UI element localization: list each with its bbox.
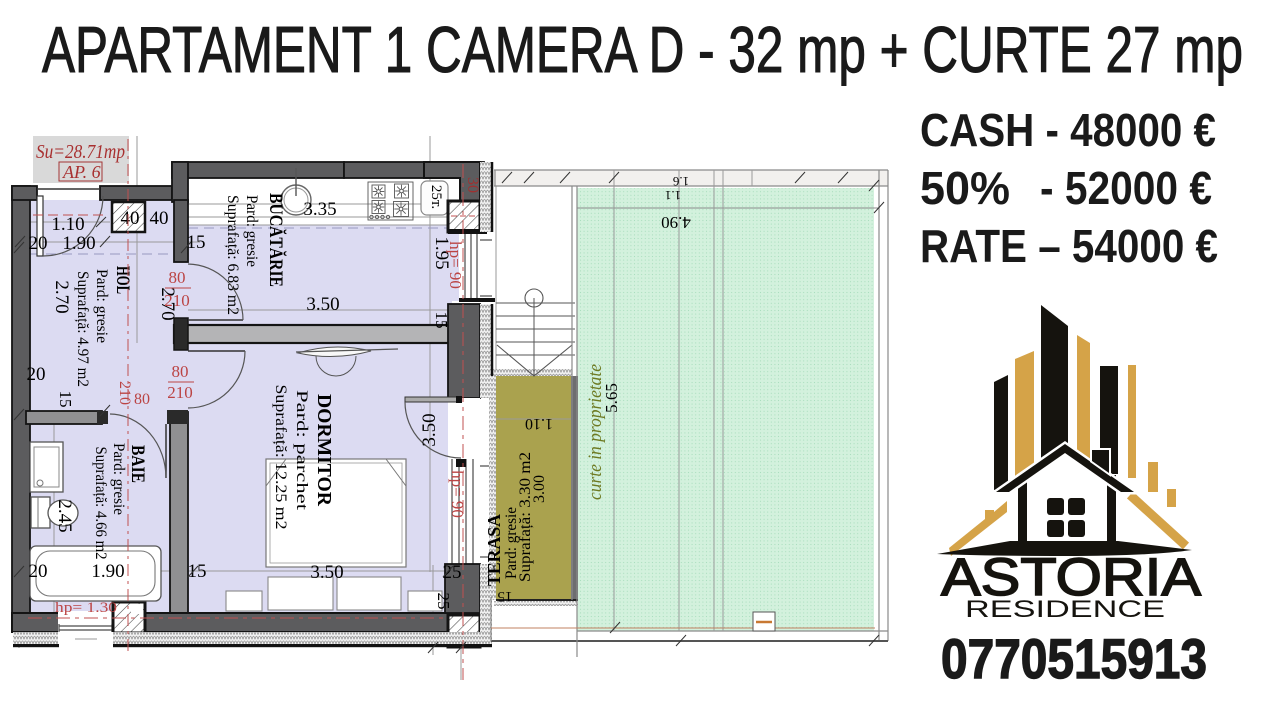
svg-text:15: 15 (498, 588, 513, 604)
svg-text:210: 210 (167, 383, 193, 402)
svg-text:20: 20 (27, 364, 46, 385)
svg-text:80: 80 (169, 268, 186, 287)
svg-text:Su=28.71mp: Su=28.71mp (36, 141, 125, 163)
svg-text:3.00: 3.00 (531, 475, 548, 503)
svg-text:15: 15 (432, 312, 451, 329)
svg-text:Pard: gresie: Pard: gresie (243, 195, 260, 267)
svg-text:0770515913: 0770515913 (941, 627, 1207, 690)
svg-text:2.45: 2.45 (54, 499, 75, 532)
svg-text:HOL: HOL (112, 266, 133, 294)
svg-text:40: 40 (121, 208, 140, 229)
svg-text:3.35: 3.35 (303, 199, 336, 220)
svg-text:RESIDENCE: RESIDENCE (965, 596, 1165, 623)
svg-text:3.50: 3.50 (306, 294, 339, 315)
svg-text:hp= 90: hp= 90 (448, 470, 467, 518)
svg-text:DORMITOR: DORMITOR (313, 394, 335, 507)
svg-text:25: 25 (443, 562, 462, 583)
svg-text:AP. 6: AP. 6 (62, 162, 101, 182)
svg-text:BUCĂTĂRIE: BUCĂTĂRIE (265, 193, 287, 287)
svg-text:15: 15 (187, 232, 206, 253)
svg-text:30: 30 (464, 177, 481, 193)
svg-text:Suprafață: 4.66 m2: Suprafață: 4.66 m2 (92, 447, 109, 560)
svg-text:BAIE: BAIE (127, 445, 148, 483)
svg-text:80: 80 (172, 362, 189, 381)
svg-text:210: 210 (116, 381, 133, 405)
svg-text:25т.: 25т. (428, 185, 444, 209)
svg-text:Suprafață: 3.30 m2: Suprafață: 3.30 m2 (517, 452, 534, 582)
svg-text:- 52000 €: - 52000 € (1040, 162, 1212, 214)
svg-text:Suprafață: 6.83 m2: Suprafață: 6.83 m2 (224, 195, 241, 315)
svg-text:1.90: 1.90 (62, 233, 95, 254)
svg-text:hp= 90: hp= 90 (446, 241, 465, 289)
svg-text:2.70: 2.70 (51, 280, 72, 313)
svg-text:15: 15 (56, 391, 75, 408)
svg-text:1.10: 1.10 (51, 214, 84, 235)
svg-text:80: 80 (134, 391, 150, 408)
svg-text:50%: 50% (920, 162, 1010, 214)
svg-text:15: 15 (188, 561, 207, 582)
svg-text:1.1: 1.1 (665, 188, 681, 203)
svg-text:20: 20 (29, 233, 48, 254)
svg-text:1.90: 1.90 (91, 561, 124, 582)
svg-text:3.50: 3.50 (419, 413, 440, 446)
svg-text:RATE – 54000 €: RATE – 54000 € (920, 220, 1218, 272)
svg-text:Pard: parchet: Pard: parchet (293, 390, 310, 511)
svg-text:25: 25 (434, 593, 453, 610)
svg-text:Suprafață: 4.97 m2: Suprafață: 4.97 m2 (74, 271, 91, 387)
svg-text:CASH - 48000 €: CASH - 48000 € (920, 104, 1216, 156)
svg-text:1.6: 1.6 (672, 174, 689, 189)
svg-text:3.50: 3.50 (310, 562, 343, 583)
svg-text:TERASA: TERASA (484, 514, 504, 586)
svg-text:210: 210 (164, 291, 190, 310)
svg-text:4.90: 4.90 (661, 213, 691, 232)
svg-text:5.65: 5.65 (602, 383, 621, 413)
svg-text:Pard: gresie: Pard: gresie (110, 443, 127, 515)
svg-text:20: 20 (29, 561, 48, 582)
svg-text:hp= 1.30: hp= 1.30 (55, 600, 117, 616)
svg-text:Pard: gresie: Pard: gresie (93, 269, 110, 343)
svg-text:1.10: 1.10 (525, 415, 553, 432)
svg-text:APARTAMENT 1 CAMERA D - 32 mp: APARTAMENT 1 CAMERA D - 32 mp + CURTE 27… (42, 13, 1243, 86)
svg-text:40: 40 (150, 208, 169, 229)
svg-text:Suprafață: 12.25 m2: Suprafață: 12.25 m2 (272, 385, 289, 530)
